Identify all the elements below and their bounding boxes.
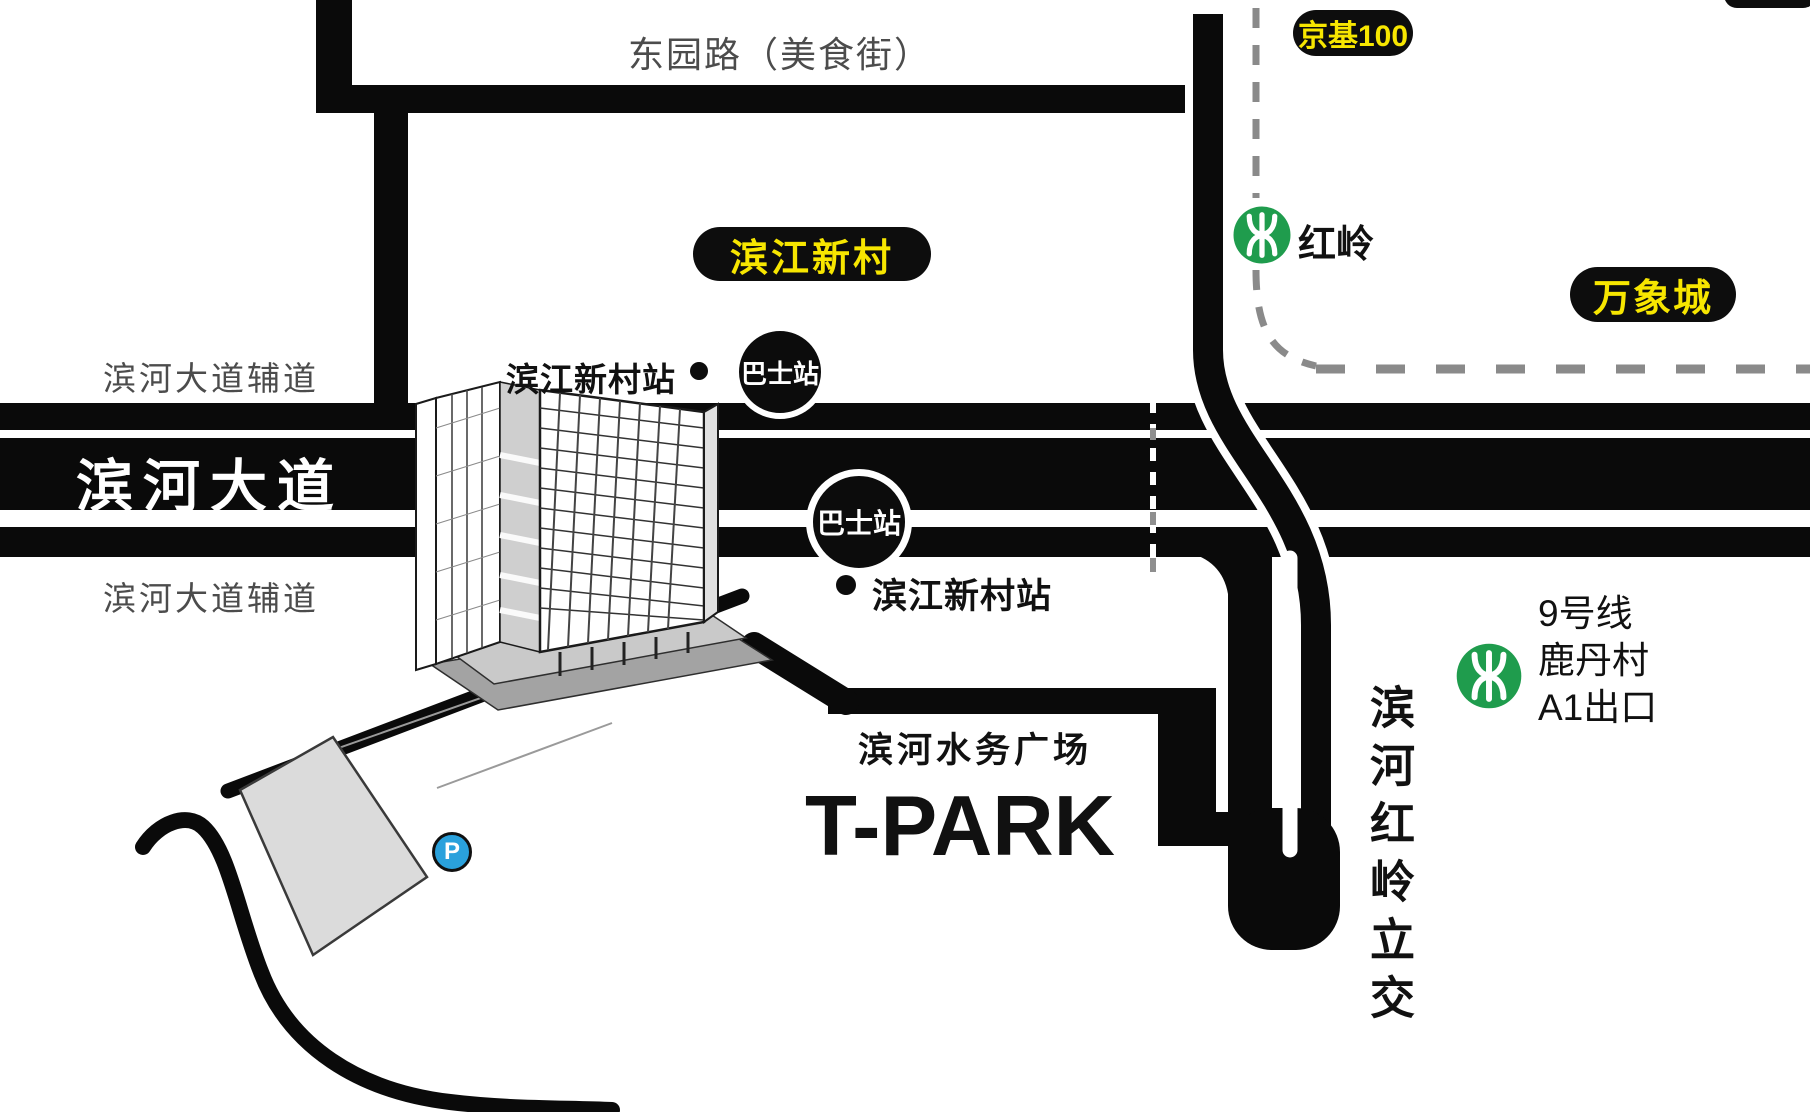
roads-artwork (0, 0, 1810, 1112)
bus-stop-badge-top: 巴士站 (733, 325, 827, 419)
road-label-binhe-main: 滨河大道 (76, 441, 344, 523)
metro-station-name: 鹿丹村 (1538, 637, 1657, 684)
metro-info-block: 9号线 鹿丹村 A1出口 (1538, 590, 1657, 731)
road-label-dongyuan: 东园路（美食街） (595, 26, 965, 78)
partial-badge-top-right (1724, 0, 1810, 8)
road-label-aux-top: 滨河大道辅道 (103, 352, 319, 400)
map-canvas: 东园路（美食街） 京基100 万象城 滨江新村 红岭 滨江新村站 巴士站 滨河大… (0, 0, 1810, 1112)
bus-stop-dot-bottom (836, 575, 856, 595)
badge-binjiang-xincun: 滨江新村 (693, 227, 931, 281)
station-label-hongling: 红岭 (1298, 213, 1374, 268)
bus-stop-badge-bottom: 巴士站 (806, 469, 912, 575)
badge-jingji100: 京基100 (1293, 10, 1413, 56)
badge-wanxiangcheng: 万象城 (1570, 267, 1736, 322)
bus-station-name-top: 滨江新村站 (506, 353, 676, 401)
metro-exit-label: A1出口 (1538, 684, 1657, 731)
bus-stop-dot-top (690, 362, 708, 380)
road-label-interchange: 滨河红岭立交 (1356, 684, 1421, 1032)
bus-station-name-bottom: 滨江新村站 (872, 568, 1052, 619)
metro-icon-hongling (1232, 205, 1292, 270)
plaza-name: 滨河水务广场 (858, 722, 1092, 773)
parking-icon: P (432, 832, 472, 872)
road-label-aux-bottom: 滨河大道辅道 (103, 572, 319, 620)
tpark-logo: T-PARK (770, 778, 1150, 876)
metro-icon-ludancun (1455, 642, 1523, 715)
metro-line-number: 9号线 (1538, 590, 1657, 637)
building-illustration (416, 382, 772, 710)
